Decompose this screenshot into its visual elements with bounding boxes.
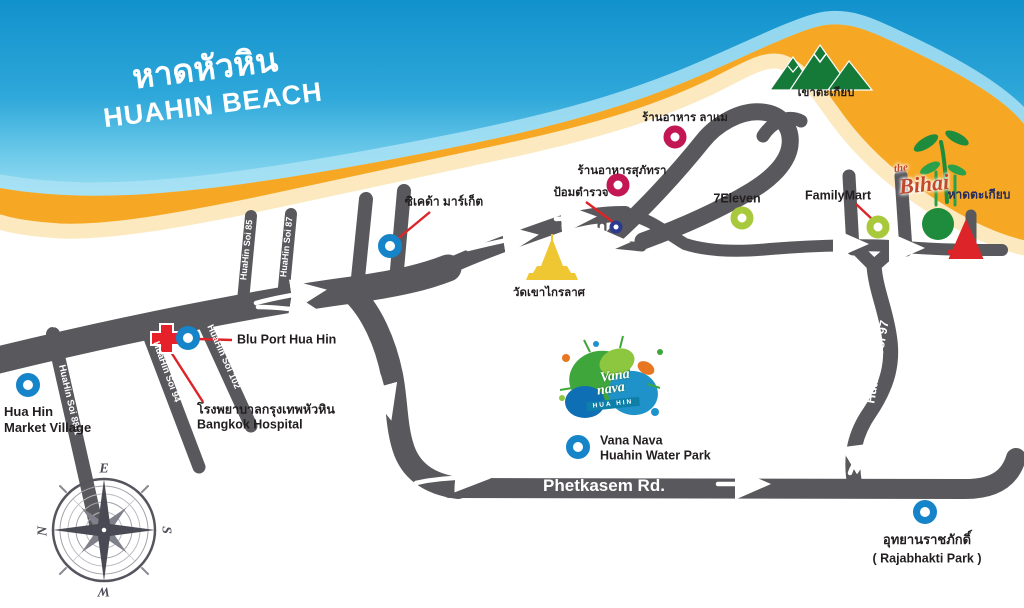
label-police-box: ป้อมตำรวจ (553, 187, 608, 199)
marker-bluport (176, 326, 200, 350)
label-bluport: Blu Port Hua Hin (237, 333, 336, 346)
marker-police-box (610, 221, 623, 234)
road-soi97-fork-right (874, 250, 892, 266)
label-vananava-line1: Vana Nava (600, 434, 663, 447)
compass-north: N (37, 526, 52, 536)
label-vananava-line2: Huahin Water Park (600, 449, 711, 462)
label-cicada-market: ซิเคด้า มาร์เก็ต (405, 196, 483, 209)
label-khao-takiab: เขาตะเกียบ (798, 87, 855, 99)
compass-rose (53, 479, 155, 581)
marker-lamer-restaurant (664, 126, 687, 149)
label-familymart: FamilyMart (805, 189, 871, 202)
label-rajabhakti-thai: อุทยานราชภักดิ์ (883, 533, 971, 547)
arrow-junction-straight (556, 217, 588, 219)
marker-vananava-waterpark (566, 435, 590, 459)
label-bangkok-hospital-english: Bangkok Hospital (197, 418, 303, 431)
road-stub-familymart-left (849, 176, 853, 249)
label-hat-takiab: หาดตะเกียบ (948, 189, 1011, 202)
marker-familymart (867, 216, 890, 239)
label-lamer-restaurant: ร้านอาหาร ลาแม (642, 112, 728, 124)
marker-rajabhakti-park (913, 500, 937, 524)
label-supatra-restaurant: ร้านอาหารสุภัทรา (578, 165, 667, 177)
label-market-village-line1: Hua Hin (4, 405, 53, 419)
bihai-logo-name: Bihai (898, 170, 950, 198)
marker-seven-eleven (731, 207, 754, 230)
road-cicada-soi-a (357, 199, 366, 288)
road-label-phetkasem-lower: Phetkasem Rd. (543, 477, 665, 495)
marker-market-village (16, 373, 40, 397)
label-temple: วัดเขาไกรลาศ (513, 287, 585, 299)
label-seven-eleven: 7Eleven (713, 192, 760, 205)
compass-west: W (98, 583, 110, 598)
label-bangkok-hospital-thai: โรงพยาบาลกรุงเทพหัวหิน (197, 403, 335, 416)
compass-south: S (158, 526, 173, 534)
road-flyover (350, 291, 458, 488)
label-market-village-line2: Market Village (4, 421, 91, 435)
huahin-beach-map: หาดหัวหิน HUAHIN BEACH Phetkasem Rd. FLY… (0, 0, 1024, 608)
bihai-location-circle (922, 208, 954, 240)
compass-east: E (99, 463, 108, 478)
label-rajabhakti-english: ( Rajabhakti Park ) (872, 552, 981, 565)
marker-cicada-market (378, 234, 402, 258)
